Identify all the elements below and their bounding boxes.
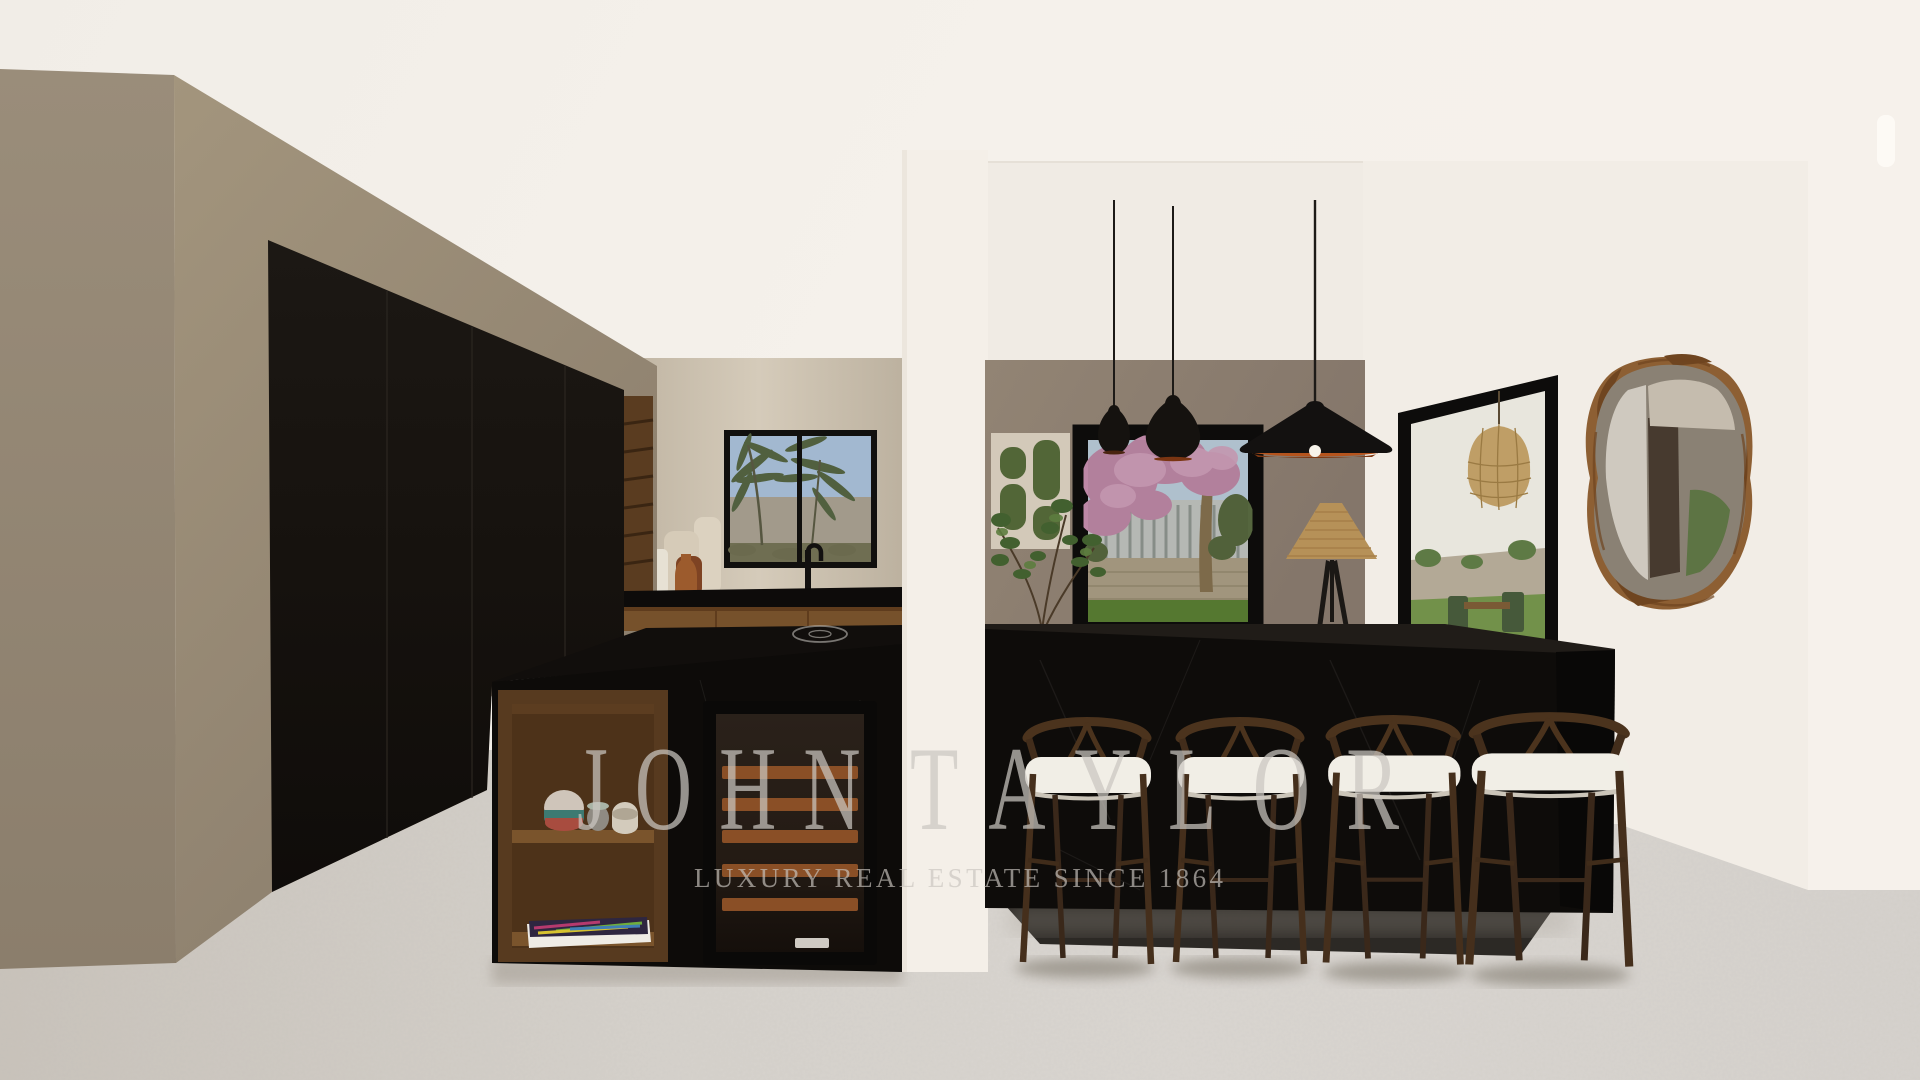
svg-text:TAYLOR: TAYLOR bbox=[910, 722, 1435, 855]
svg-text:JOHN: JOHN bbox=[577, 722, 888, 855]
svg-text:LUXURY REAL ESTATE SINCE 1864: LUXURY REAL ESTATE SINCE 1864 bbox=[694, 863, 1226, 893]
